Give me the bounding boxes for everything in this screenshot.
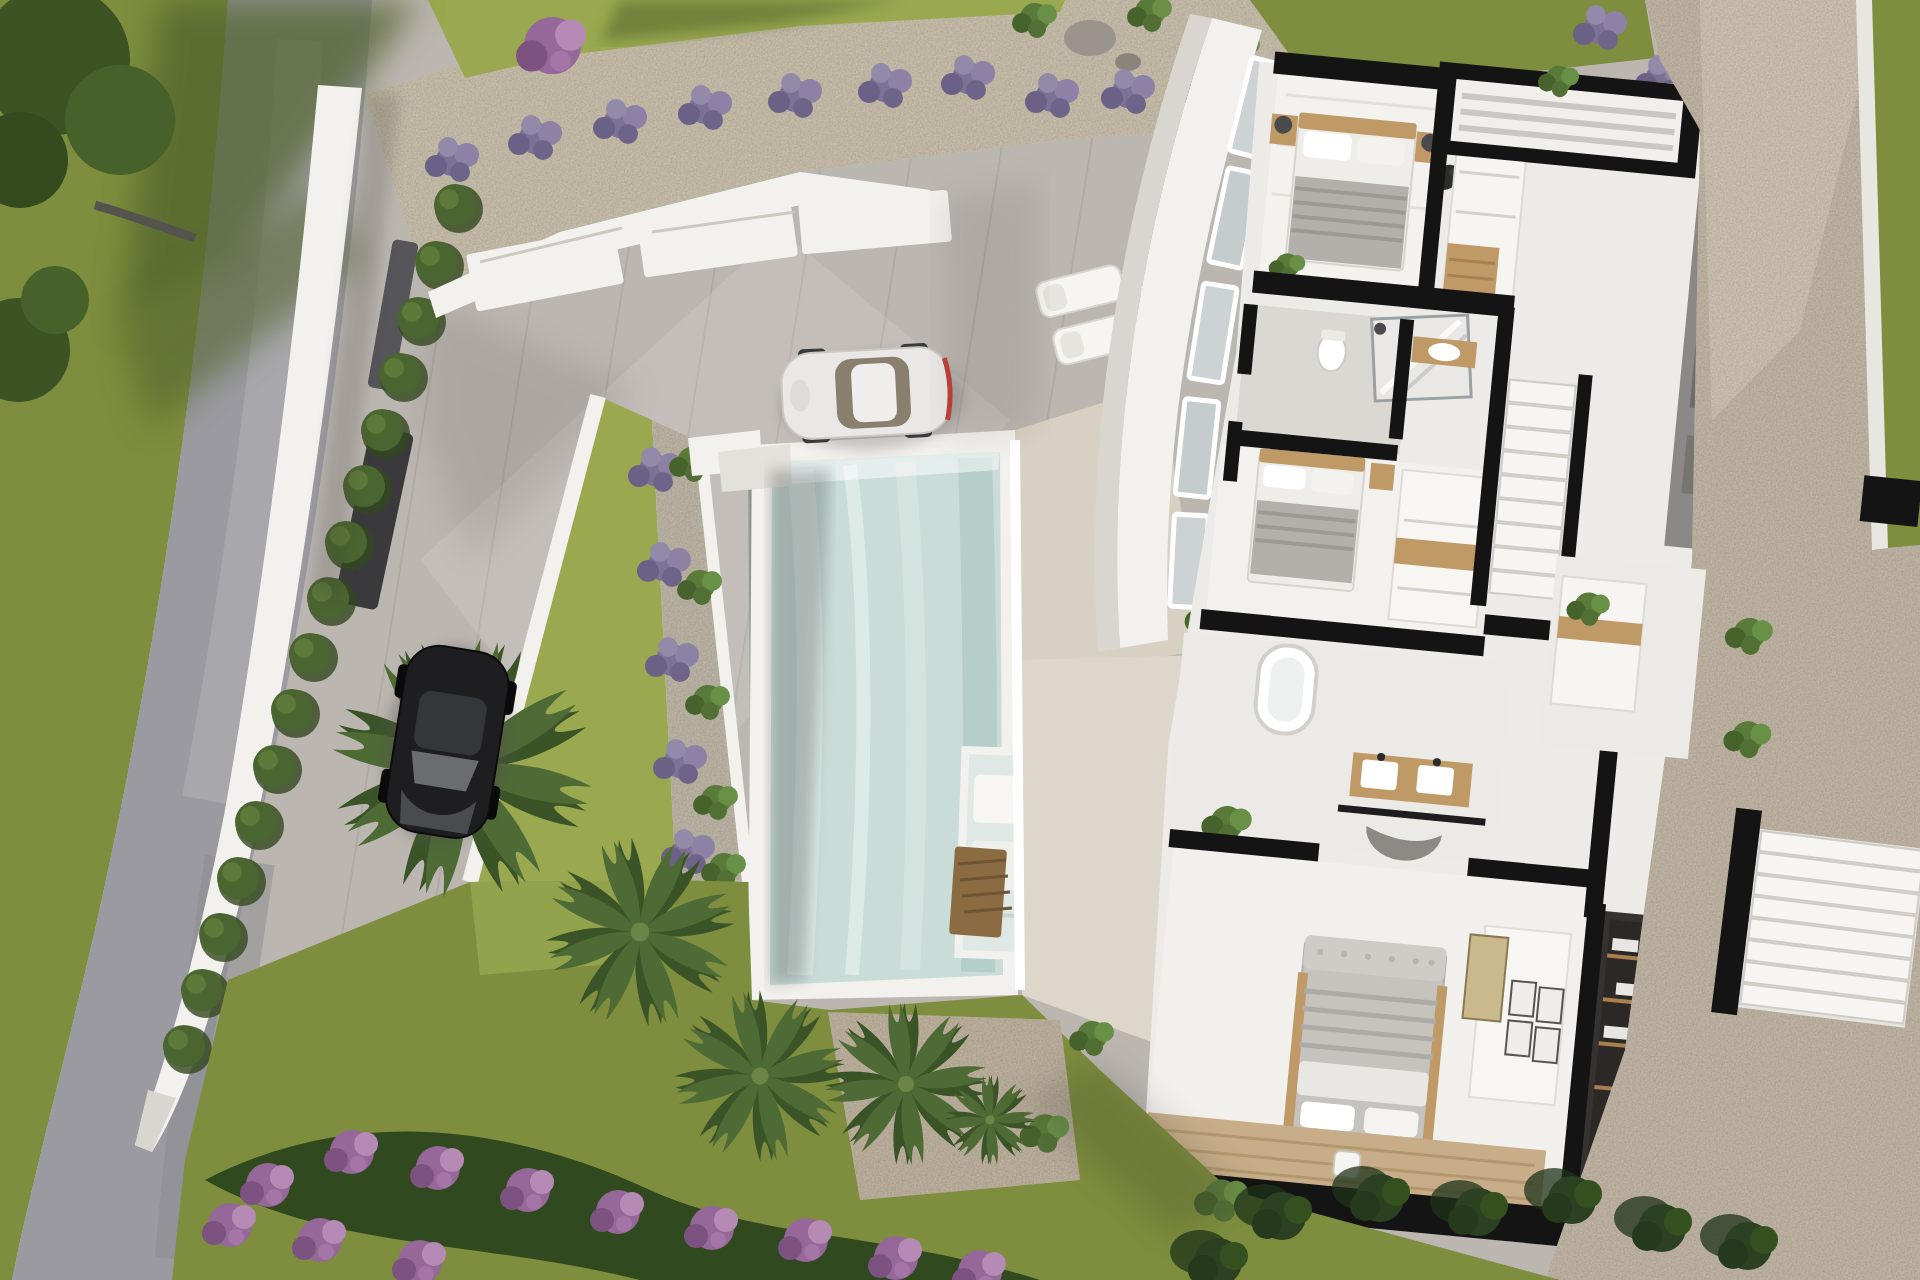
pillow — [1302, 131, 1352, 161]
bedroom-2 — [1206, 444, 1491, 640]
large-artwork — [1462, 934, 1508, 1021]
pillow — [1356, 136, 1406, 166]
car-roof — [412, 689, 488, 757]
car-roof — [851, 363, 898, 423]
pillow — [1363, 1107, 1419, 1138]
nightstand — [1369, 463, 1395, 491]
sink — [1416, 765, 1455, 796]
render-canvas — [0, 0, 1920, 1280]
pillow — [1299, 1101, 1355, 1132]
pillow — [1263, 464, 1307, 490]
sink — [1360, 759, 1399, 790]
pillow — [1310, 469, 1354, 495]
deck-edge — [1015, 440, 1020, 990]
wall-chunk — [1860, 475, 1920, 527]
boulder — [1064, 20, 1116, 56]
tree-canopy — [65, 65, 175, 175]
boulder-small — [1115, 53, 1141, 71]
wood-cubby — [1443, 243, 1499, 296]
aerial-villa-render — [0, 0, 1920, 1280]
master-bedroom — [1142, 847, 1592, 1214]
tree-canopy — [21, 266, 89, 334]
